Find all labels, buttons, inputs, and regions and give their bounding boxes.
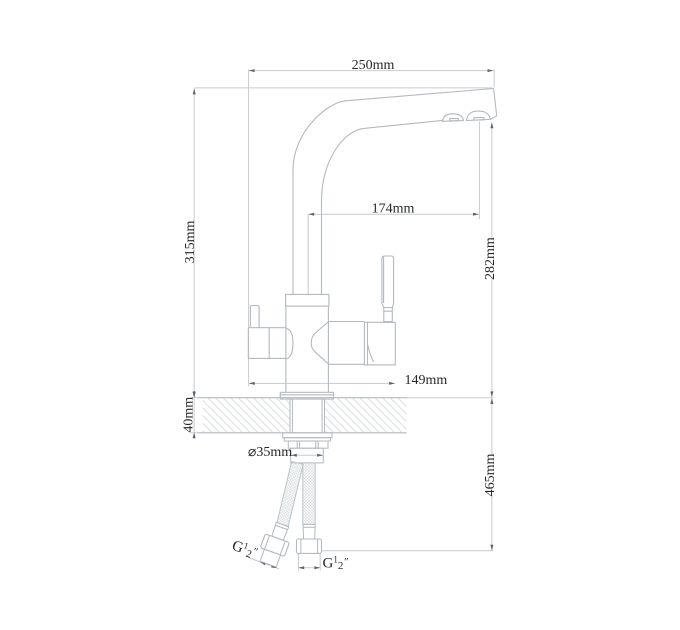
svg-text:G12″: G12″ bbox=[323, 554, 349, 572]
svg-text:465mm: 465mm bbox=[483, 454, 498, 497]
svg-text:315mm: 315mm bbox=[183, 221, 198, 264]
svg-text:149mm: 149mm bbox=[405, 373, 448, 388]
svg-text:282mm: 282mm bbox=[483, 237, 498, 280]
svg-text:G12″: G12″ bbox=[230, 537, 260, 562]
svg-text:174mm: 174mm bbox=[372, 202, 415, 217]
svg-text:40mm: 40mm bbox=[182, 397, 197, 433]
svg-text:250mm: 250mm bbox=[352, 58, 395, 73]
svg-text:⌀35mm: ⌀35mm bbox=[248, 445, 292, 460]
